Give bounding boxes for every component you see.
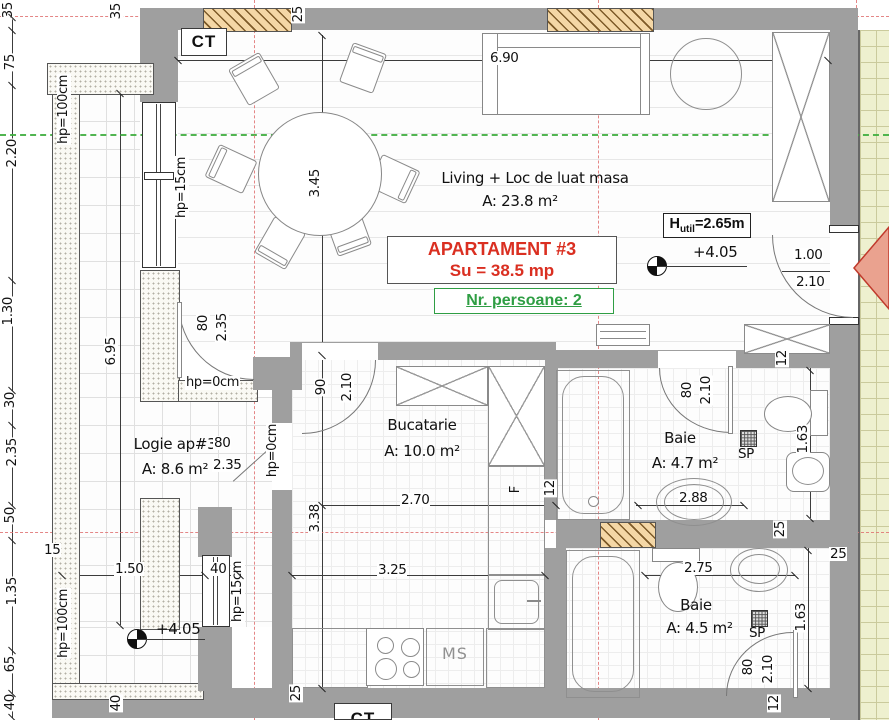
- bath2-label: Baie: [666, 596, 726, 614]
- dim-6-90: 6.90: [489, 51, 519, 65]
- sofa-back-line: [497, 47, 640, 48]
- dim-3-45: 3.45: [308, 168, 322, 198]
- living-window: [142, 102, 176, 268]
- door-bath1-height: 2.10: [699, 375, 713, 405]
- chain-65: 65: [3, 655, 17, 673]
- ct-box-bottom: CT: [334, 703, 392, 720]
- persons-box: Nr. persoane: 2: [434, 288, 614, 314]
- door-entry-height: 2.10: [795, 275, 825, 289]
- logie-door-leaf: [177, 302, 182, 378]
- height-box: Hutil=2.65m: [663, 213, 751, 238]
- dim-25-right: 25: [829, 547, 847, 561]
- kitchen-counter-bottom-left: [292, 628, 368, 688]
- parapet-15-logie: hp=15cm: [231, 560, 245, 623]
- kitchen-tall-cabinet: [488, 366, 545, 466]
- kitchen-area: A: 10.0 m²: [358, 442, 486, 460]
- cooktop-burner: [403, 661, 420, 678]
- chain-1-35: 1.35: [5, 576, 19, 606]
- dim-1-63-b: 1.63: [794, 602, 808, 632]
- kitchen-sink-faucet: [527, 600, 541, 602]
- dim-2-75: 2.75: [683, 561, 713, 575]
- dim-2-70: 2.70: [400, 493, 430, 507]
- level-line-logie: [137, 639, 205, 640]
- bath2-area: A: 4.5 m²: [652, 619, 747, 637]
- wall-left-lower: [140, 498, 180, 630]
- apartment-title: APARTAMENT #3: [428, 239, 576, 261]
- living-window-glazing-1: [156, 104, 157, 266]
- floor-drain-1-label: SP: [737, 447, 755, 461]
- wall-right: [830, 30, 858, 720]
- door-logie-height: 2.35: [215, 312, 229, 342]
- door-kitchen-width: 90: [314, 378, 328, 396]
- shoe-cabinet-line: [600, 331, 646, 332]
- chain-35: 35: [1, 1, 15, 19]
- shoe-cabinet: [596, 324, 650, 346]
- ct-label-bottom: CT: [351, 709, 376, 720]
- door-bath2-height: 2.10: [761, 654, 775, 684]
- parapet-0-door2: hp=0cm: [266, 423, 280, 478]
- toilet-1-tank: [810, 390, 828, 436]
- wardrobe: [772, 32, 830, 202]
- parapet-100-bottom: hp=100cm: [57, 588, 71, 659]
- dim-35-top: 35: [109, 2, 123, 20]
- ct-box-top: CT: [181, 28, 227, 56]
- level-value-living: +4.05: [693, 243, 737, 261]
- wall-window-column-bottom: [198, 627, 232, 691]
- side-table: [670, 38, 742, 110]
- bathtub-1-inner: [562, 376, 624, 514]
- bath1-door-opening: [658, 351, 736, 368]
- chain-2-35: 2.35: [5, 437, 19, 467]
- axis-green-line: [0, 134, 889, 136]
- chain-75: 75: [3, 53, 17, 71]
- dim-1-63-a: 1.63: [796, 424, 810, 454]
- floor-drain-1: [740, 430, 757, 447]
- cooktop-burner: [375, 658, 397, 680]
- bath1-area: A: 4.7 m²: [640, 454, 730, 472]
- dim-3-38: 3.38: [308, 503, 322, 533]
- dim-2-88: 2.88: [678, 491, 708, 505]
- dim-1-50: 1.50: [114, 562, 144, 576]
- washing-machine-label: MS: [441, 646, 469, 663]
- floor-drain-2-label: SP: [748, 626, 766, 640]
- dim-12-kitchen: 12: [543, 479, 557, 497]
- dim-line-left-chain: [12, 2, 13, 718]
- dim-25-mid: 25: [773, 520, 787, 538]
- dim-15: 15: [43, 543, 61, 557]
- kitchen-counter-upper: [396, 366, 488, 406]
- door-logie2-height: 2.35: [212, 458, 242, 472]
- bath2-door-leaf: [793, 630, 798, 698]
- bath1-door-leaf: [728, 366, 733, 434]
- dim-40-b: 40: [109, 694, 123, 712]
- door-logie2-width: 80: [213, 436, 231, 450]
- logie-area: A: 8.6 m²: [125, 460, 225, 478]
- apartment-title-box: APARTAMENT #3 Su = 38.5 mp: [387, 236, 617, 284]
- parapet-15-living: hp=15cm: [175, 156, 189, 219]
- wall-bath2-west: [545, 548, 566, 688]
- kitchen-label: Bucatarie: [362, 416, 482, 434]
- living-window-glazing-2: [160, 104, 161, 266]
- wall-top-column-2: [547, 8, 654, 32]
- sofa-armrest-right: [640, 33, 641, 115]
- apartment-surface: Su = 38.5 mp: [450, 261, 554, 281]
- wall-left-mid: [140, 270, 180, 402]
- door-bath1-width: 80: [680, 381, 694, 399]
- shoe-cabinet-line2: [600, 338, 646, 339]
- kitchen-door-opening: [302, 343, 378, 360]
- dim-12-bath1: 12: [775, 349, 789, 367]
- dim-25-bottom: 25: [289, 684, 303, 702]
- dim-12-bath2: 12: [767, 694, 781, 712]
- wall-corner-logie: [253, 357, 302, 390]
- useful-height-label: Hutil=2.65m: [669, 216, 744, 235]
- cooktop-burner: [401, 638, 420, 657]
- entrance-arrow-icon: [852, 223, 889, 313]
- fridge-label: F: [508, 485, 522, 494]
- chain-2-20: 2.20: [5, 138, 19, 168]
- living-window-divider: [144, 172, 174, 180]
- door-bath2-width: 80: [741, 658, 755, 676]
- wall-window-column-top: [198, 507, 232, 557]
- cooktop-burner: [377, 637, 394, 654]
- sofa: [482, 33, 650, 115]
- dim-40-a: 40: [209, 562, 227, 576]
- living-room-label: Living + Loc de luat masa: [420, 169, 650, 187]
- kitchen-sink-basin: [494, 580, 539, 624]
- ct-label-top: CT: [192, 32, 217, 52]
- cooktop: [366, 628, 424, 686]
- parapet-100-top: hp=100cm: [57, 74, 71, 145]
- wall-bottom-left: [52, 697, 202, 718]
- bath1-label: Baie: [650, 429, 710, 447]
- dim-25-top: 25: [291, 5, 305, 23]
- floor-plan: +4.05 +4.05 Living + Loc de luat masa A:…: [0, 0, 889, 720]
- chain-1-30: 1.30: [1, 296, 15, 326]
- wall-between-baths-column: [600, 522, 656, 548]
- sofa-armrest-left: [497, 33, 498, 115]
- dim-6-95: 6.95: [104, 336, 118, 366]
- level-line-living: [657, 266, 747, 267]
- door-logie-width: 80: [196, 314, 210, 332]
- kitchen-counter-bottom-right: [486, 628, 545, 688]
- living-room-area: A: 23.8 m²: [455, 192, 585, 210]
- kitchen-counter-right: [488, 466, 545, 576]
- dim-3-25: 3.25: [377, 563, 407, 577]
- level-value-logie: +4.05: [156, 620, 200, 638]
- door-entry-width: 1.00: [793, 248, 823, 262]
- bathtub-1-drain: [588, 496, 599, 507]
- door-kitchen-height: 2.10: [340, 372, 354, 402]
- wall-bottom-left-stipple: [52, 683, 204, 700]
- sink-2-basin: [738, 554, 780, 584]
- dim-line-6-95: [120, 93, 121, 625]
- sink-1-basin: [792, 457, 824, 485]
- parapet-0-door: hp=0cm: [185, 376, 240, 390]
- entry-jamb-bottom: [829, 317, 859, 325]
- bathtub-2-inner: [572, 556, 634, 692]
- persons-label: Nr. persoane: 2: [466, 292, 582, 310]
